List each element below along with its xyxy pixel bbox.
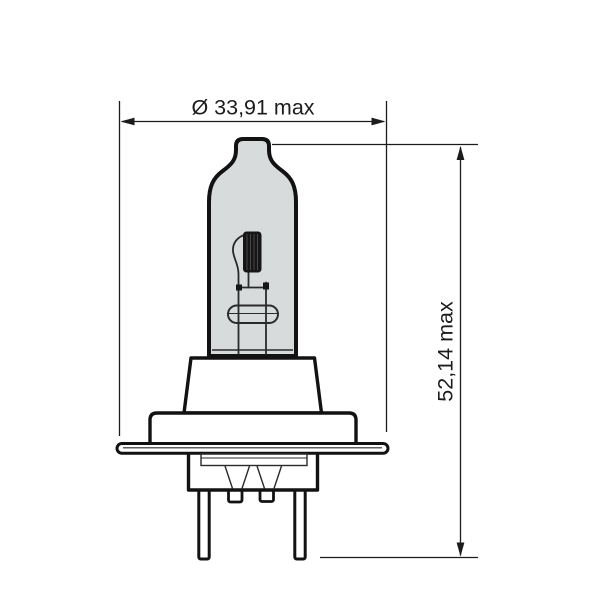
filament-coil — [244, 232, 262, 272]
base-neck — [184, 358, 322, 413]
terminal-pin-left — [199, 489, 209, 559]
bulb-technical-drawing: Ø 33,91 max 52,14 max — [0, 0, 600, 600]
arrow-down-icon — [457, 543, 465, 557]
terminal-pin-right — [295, 489, 305, 559]
bulb — [117, 139, 388, 559]
wire-joint-right — [264, 283, 269, 289]
arrow-up-icon — [457, 146, 465, 160]
arrow-left-icon — [121, 118, 135, 126]
drawing-canvas: Ø 33,91 max 52,14 max — [0, 0, 600, 600]
height-dimension-label: 52,14 max — [434, 301, 458, 402]
arrow-right-icon — [372, 118, 386, 126]
base-collar — [150, 413, 356, 446]
mounting-flange — [117, 444, 388, 454]
wire-joint-left — [237, 285, 242, 290]
width-dimension-label: Ø 33,91 max — [191, 96, 314, 120]
